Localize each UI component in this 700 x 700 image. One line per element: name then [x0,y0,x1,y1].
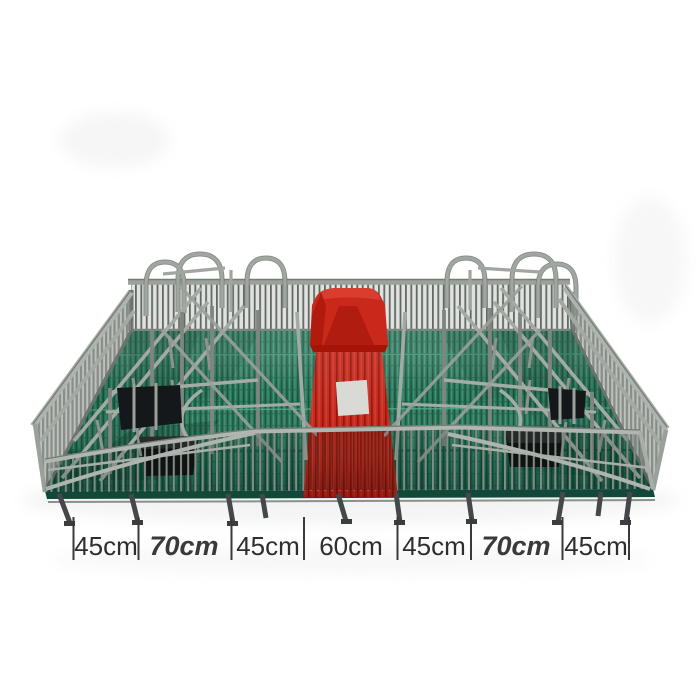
svg-text:45cm: 45cm [402,531,466,561]
svg-text:70cm: 70cm [481,531,550,561]
svg-text:45cm: 45cm [564,531,628,561]
svg-text:60cm: 60cm [319,531,383,561]
svg-text:45cm: 45cm [74,531,138,561]
svg-text:70cm: 70cm [149,531,218,561]
svg-text:45cm: 45cm [236,531,300,561]
